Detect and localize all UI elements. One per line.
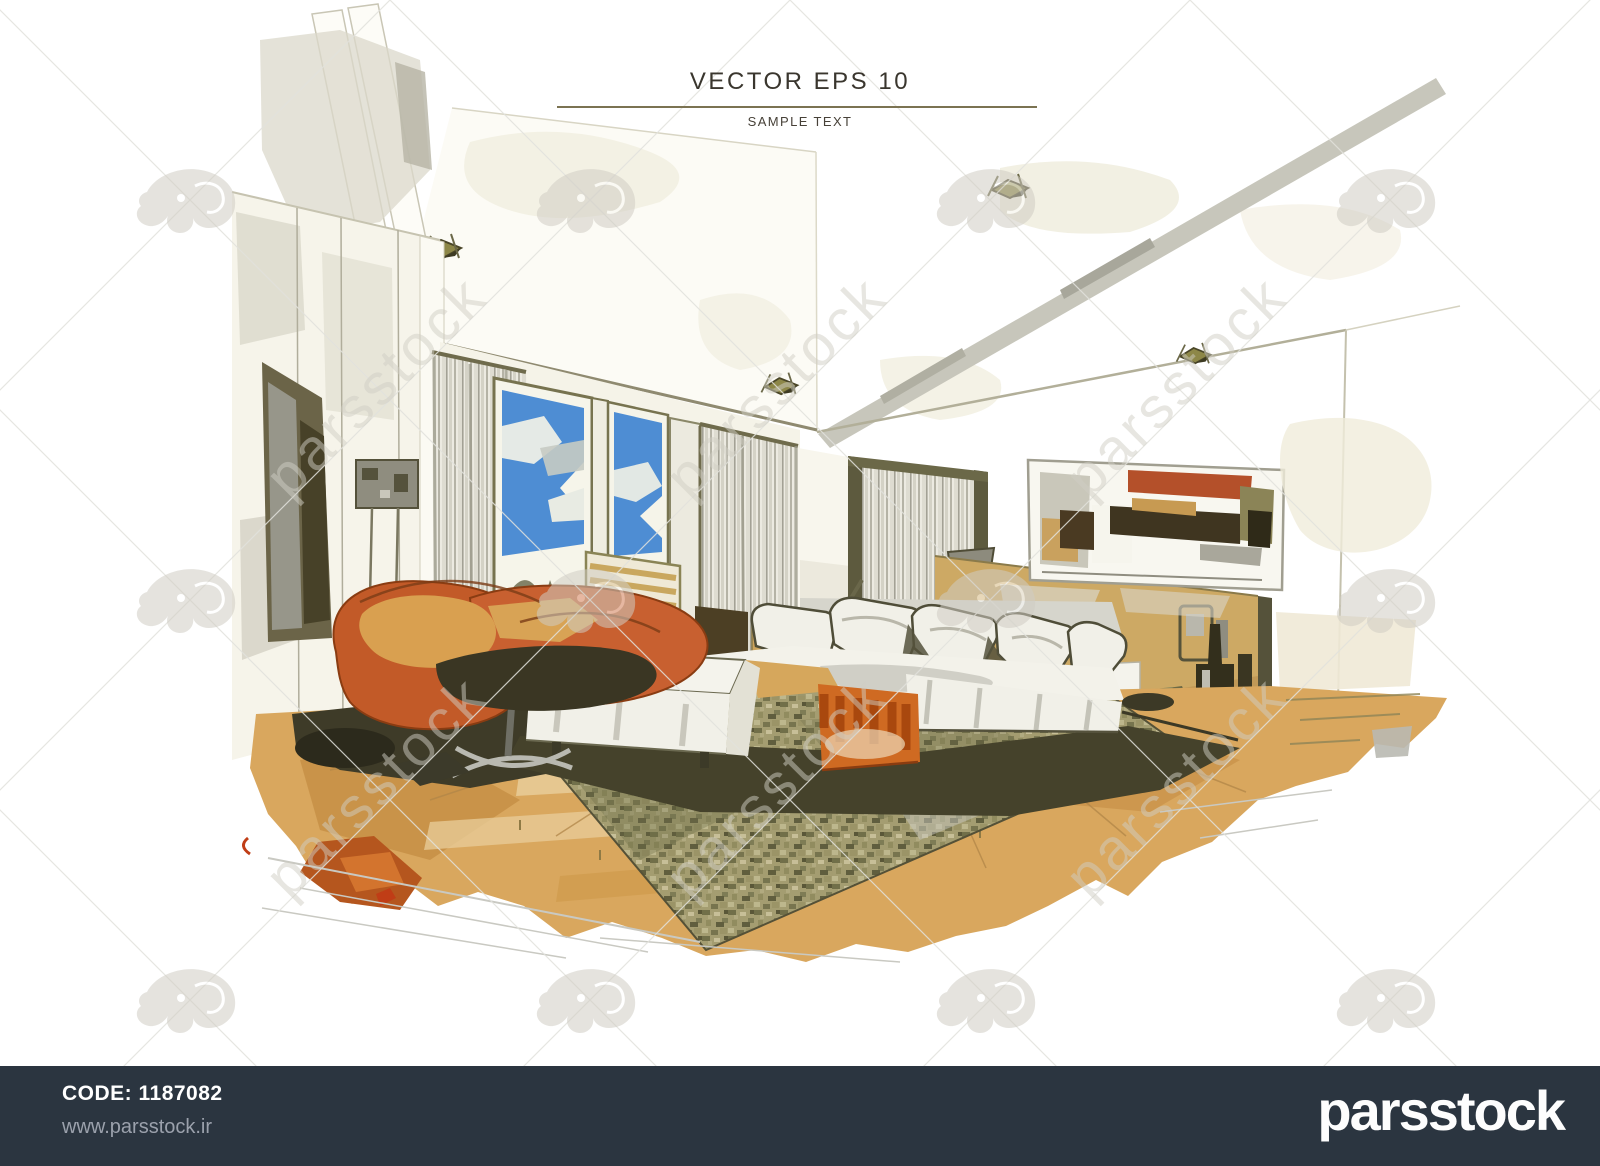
brand-logo: parsstock xyxy=(1317,1078,1564,1143)
side-table xyxy=(295,728,395,768)
wall-bracket xyxy=(356,460,418,508)
floor-bowl xyxy=(1122,693,1174,711)
page-subtitle: SAMPLE TEXT xyxy=(0,114,1600,129)
stock-image-canvas: parsstock parsstock parsstock parsstock … xyxy=(0,0,1600,1166)
sky-view xyxy=(502,390,584,556)
title-divider xyxy=(557,106,1037,108)
footer-bar: CODE: 1187082 www.parsstock.ir parsstock xyxy=(0,1066,1600,1166)
interior-sketch-illustration xyxy=(0,0,1600,1166)
website-url: www.parsstock.ir xyxy=(62,1116,212,1139)
ceiling-spotlight-icon xyxy=(1177,343,1211,363)
image-code: CODE: 1187082 xyxy=(62,1082,223,1106)
page-title: VECTOR EPS 10 xyxy=(0,68,1600,96)
abstract-art xyxy=(1000,418,1431,618)
